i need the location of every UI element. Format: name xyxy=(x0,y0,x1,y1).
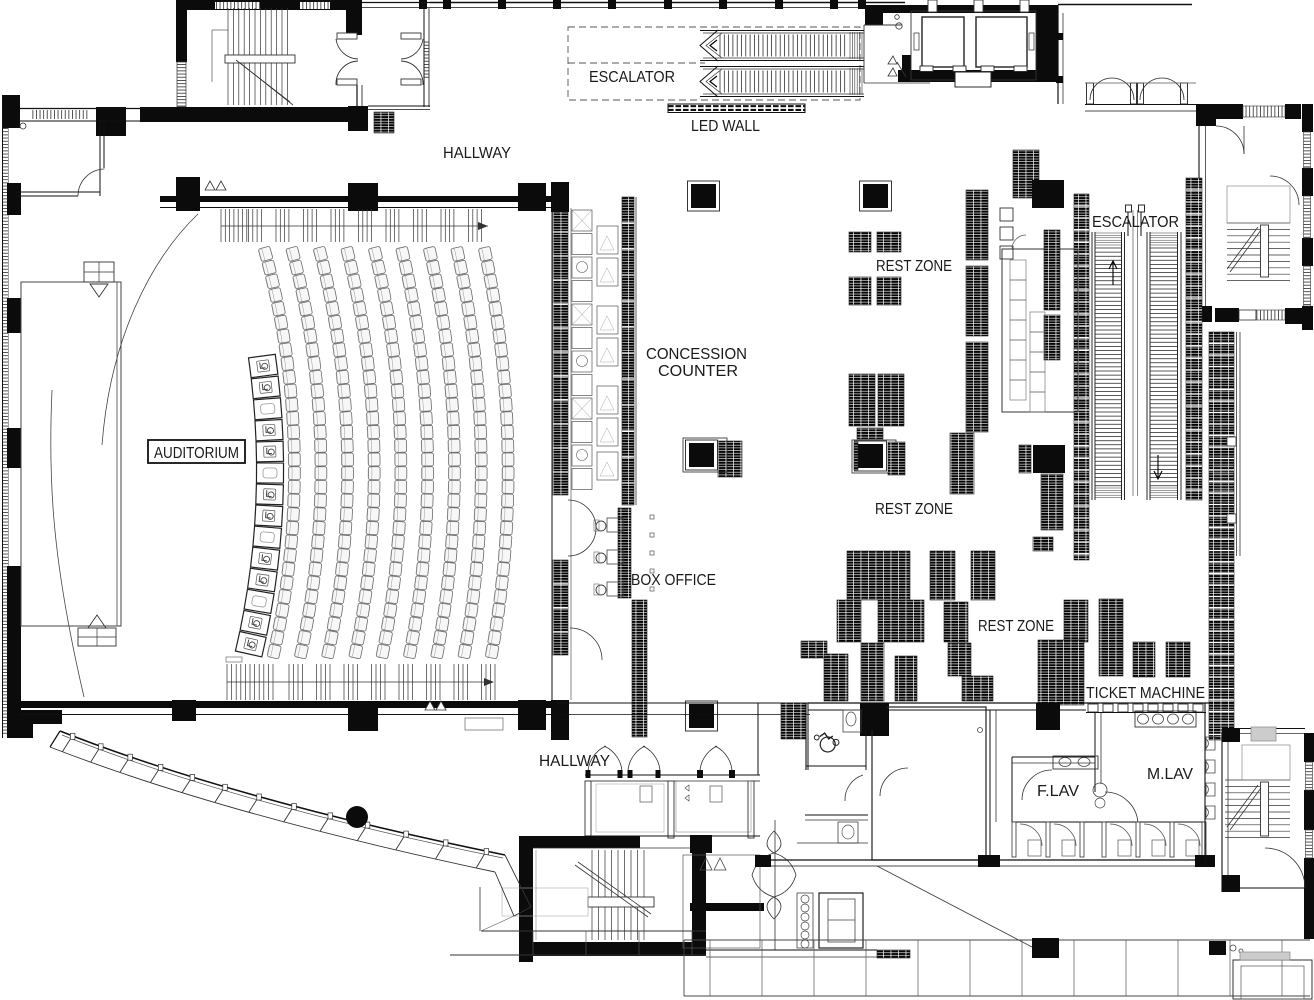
svg-text:AUDITORIUM: AUDITORIUM xyxy=(154,445,239,462)
svg-text:COUNTER: COUNTER xyxy=(658,363,738,380)
svg-text:LED WALL: LED WALL xyxy=(691,118,760,135)
svg-text:REST ZONE: REST ZONE xyxy=(876,258,952,275)
svg-text:ESCALATOR: ESCALATOR xyxy=(1092,214,1179,231)
svg-text:REST ZONE: REST ZONE xyxy=(875,501,953,518)
svg-text:ESCALATOR: ESCALATOR xyxy=(589,69,675,86)
svg-text:TICKET MACHINE: TICKET MACHINE xyxy=(1086,685,1205,702)
svg-text:M.LAV: M.LAV xyxy=(1147,766,1193,783)
svg-text:CONCESSION: CONCESSION xyxy=(646,346,747,363)
svg-text:BOX OFFICE: BOX OFFICE xyxy=(631,572,716,589)
svg-text:REST ZONE: REST ZONE xyxy=(978,618,1054,635)
svg-text:F.LAV: F.LAV xyxy=(1037,783,1079,800)
svg-text:HALLWAY: HALLWAY xyxy=(443,145,511,162)
svg-text:HALLWAY: HALLWAY xyxy=(539,753,610,770)
